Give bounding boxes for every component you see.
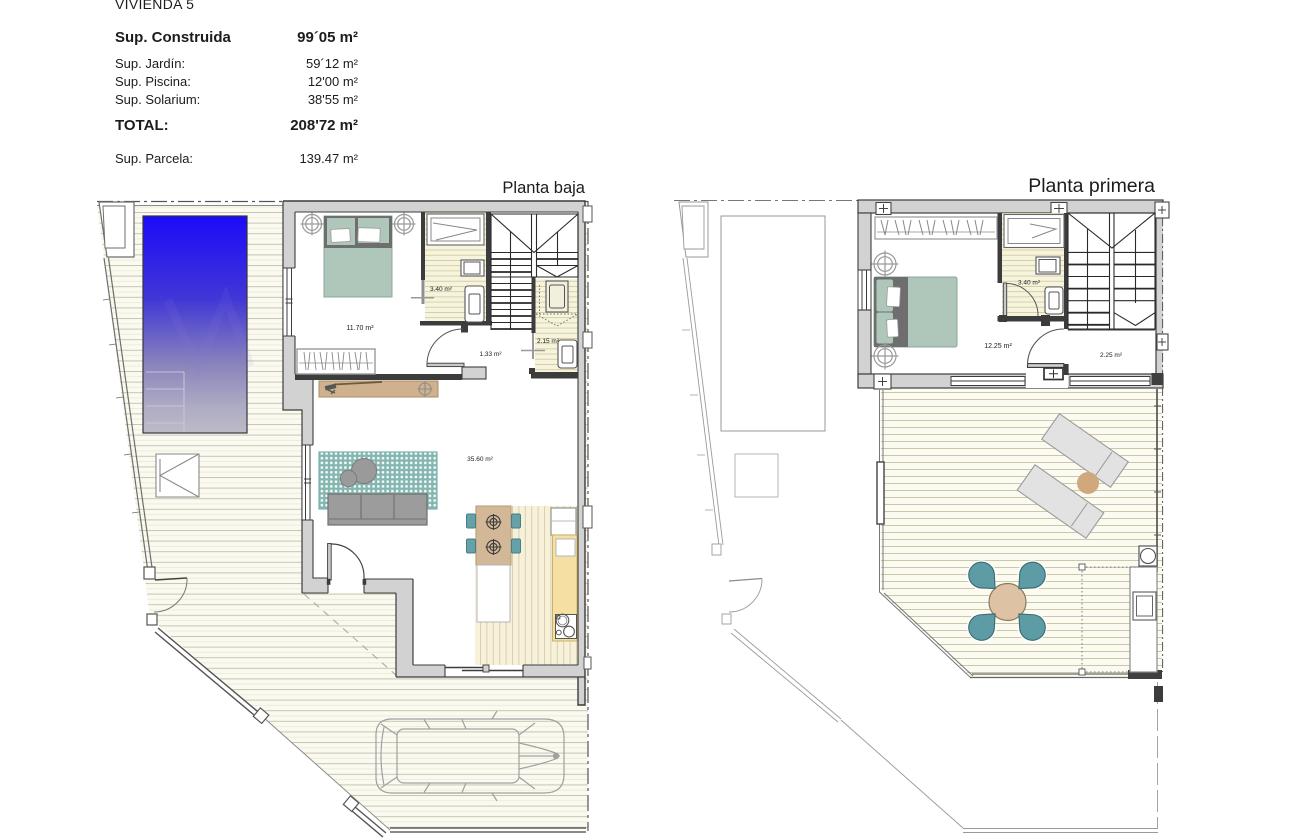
svg-text:1.33 m²: 1.33 m²: [479, 351, 502, 358]
svg-text:Sup. Solarium:: Sup. Solarium:: [115, 92, 200, 107]
svg-text:TOTAL:: TOTAL:: [115, 117, 169, 134]
svg-text:139.47 m²: 139.47 m²: [299, 151, 358, 166]
svg-text:Sup. Jardín:: Sup. Jardín:: [115, 56, 185, 71]
svg-text:2.25 m²: 2.25 m²: [1100, 352, 1123, 359]
svg-text:VIVIENDA 5: VIVIENDA 5: [115, 0, 194, 12]
svg-text:38'55 m²: 38'55 m²: [308, 92, 359, 107]
svg-text:Planta primera: Planta primera: [1028, 175, 1155, 197]
svg-text:3.40 m²: 3.40 m²: [430, 286, 453, 293]
svg-text:11.70 m²: 11.70 m²: [346, 325, 374, 332]
svg-text:59´12 m²: 59´12 m²: [306, 56, 359, 71]
svg-text:208'72 m²: 208'72 m²: [290, 117, 358, 134]
svg-text:35.60 m²: 35.60 m²: [467, 456, 493, 463]
svg-text:2.15 m²: 2.15 m²: [537, 338, 560, 345]
svg-text:Sup. Piscina:: Sup. Piscina:: [115, 74, 191, 89]
svg-text:12'00 m²: 12'00 m²: [308, 74, 359, 89]
svg-text:12.25 m²: 12.25 m²: [984, 343, 1012, 350]
svg-text:99´05 m²: 99´05 m²: [297, 29, 358, 46]
svg-text:Planta baja: Planta baja: [502, 179, 585, 197]
svg-text:3.40 m²: 3.40 m²: [1018, 280, 1041, 287]
svg-text:Sup. Parcela:: Sup. Parcela:: [115, 151, 193, 166]
svg-text:Sup. Construida: Sup. Construida: [115, 29, 231, 46]
